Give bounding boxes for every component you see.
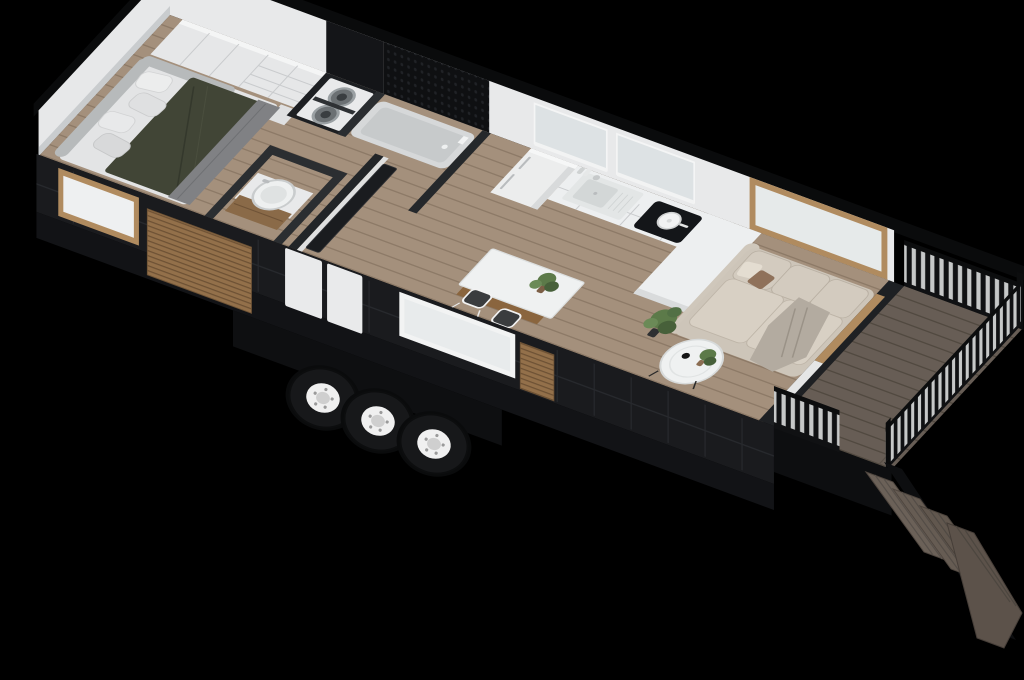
railing-post — [886, 418, 891, 471]
floorplan-canvas — [0, 0, 1024, 680]
tiny-house-render: { "image": { "kind": "3d-isometric-cutaw… — [0, 0, 1024, 680]
